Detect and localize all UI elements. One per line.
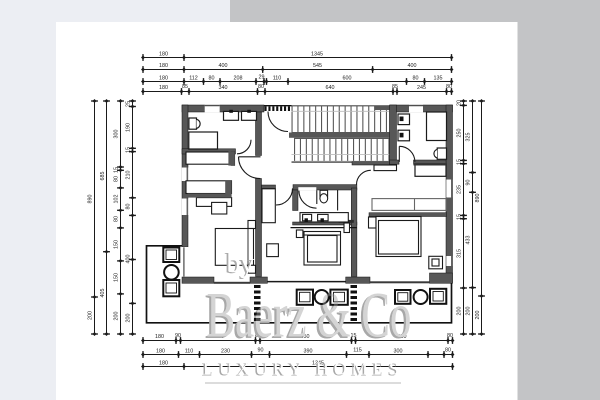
svg-text:200: 200 [466,307,472,316]
svg-text:135: 135 [434,76,443,82]
svg-text:300: 300 [114,130,120,139]
svg-text:180: 180 [155,334,164,340]
svg-text:90: 90 [466,180,472,186]
svg-text:545: 545 [313,63,322,69]
svg-text:80: 80 [258,84,264,90]
svg-text:25: 25 [126,101,132,107]
svg-text:15: 15 [114,167,120,173]
svg-text:150: 150 [114,273,120,282]
svg-text:29: 29 [259,75,265,81]
svg-text:890: 890 [88,195,94,204]
svg-text:400: 400 [126,255,132,264]
svg-text:20: 20 [457,100,463,106]
svg-text:15: 15 [457,214,463,220]
svg-text:245: 245 [417,85,426,91]
svg-text:85: 85 [182,84,188,90]
svg-text:80: 80 [446,84,452,90]
svg-text:80: 80 [114,176,120,182]
svg-text:405: 405 [100,289,106,298]
svg-text:235: 235 [457,185,463,194]
svg-text:180: 180 [159,52,168,58]
svg-text:433: 433 [466,236,472,245]
svg-text:85: 85 [392,84,398,90]
svg-text:180: 180 [159,85,168,91]
svg-text:180: 180 [159,63,168,69]
svg-text:210: 210 [126,171,132,180]
svg-text:LUXURY HOMES: LUXURY HOMES [203,359,404,379]
svg-text:200: 200 [475,311,481,320]
svg-text:80: 80 [447,333,453,339]
svg-text:80: 80 [413,76,419,82]
svg-text:1345: 1345 [311,52,323,58]
svg-text:80: 80 [126,204,132,210]
svg-text:112: 112 [189,76,198,82]
svg-text:640: 640 [326,85,335,91]
svg-text:180: 180 [159,76,168,82]
svg-text:600: 600 [343,76,352,82]
svg-text:110: 110 [273,76,282,82]
svg-text:15: 15 [457,159,463,165]
svg-text:685: 685 [100,172,106,181]
svg-text:180: 180 [156,349,165,355]
svg-text:200: 200 [88,311,94,320]
svg-text:315: 315 [457,249,463,258]
svg-text:180: 180 [159,361,168,367]
svg-text:400: 400 [408,63,417,69]
svg-text:400: 400 [219,63,228,69]
svg-text:325: 325 [466,133,472,142]
svg-text:190: 190 [126,123,132,132]
svg-text:80: 80 [209,76,215,82]
svg-text:200: 200 [457,307,463,316]
svg-text:90: 90 [175,333,181,339]
svg-text:by: by [227,248,255,279]
svg-text:150: 150 [114,240,120,249]
svg-text:250: 250 [457,129,463,138]
svg-text:110: 110 [185,349,194,355]
svg-text:200: 200 [114,312,120,321]
svg-text:102: 102 [114,195,120,204]
svg-text:15: 15 [126,147,132,153]
svg-text:890: 890 [475,194,481,203]
svg-text:340: 340 [219,85,228,91]
svg-text:80: 80 [114,216,120,222]
svg-text:Baerz & Co: Baerz & Co [207,279,412,351]
svg-text:200: 200 [126,314,132,323]
svg-text:80: 80 [445,348,451,354]
svg-text:208: 208 [234,76,243,82]
